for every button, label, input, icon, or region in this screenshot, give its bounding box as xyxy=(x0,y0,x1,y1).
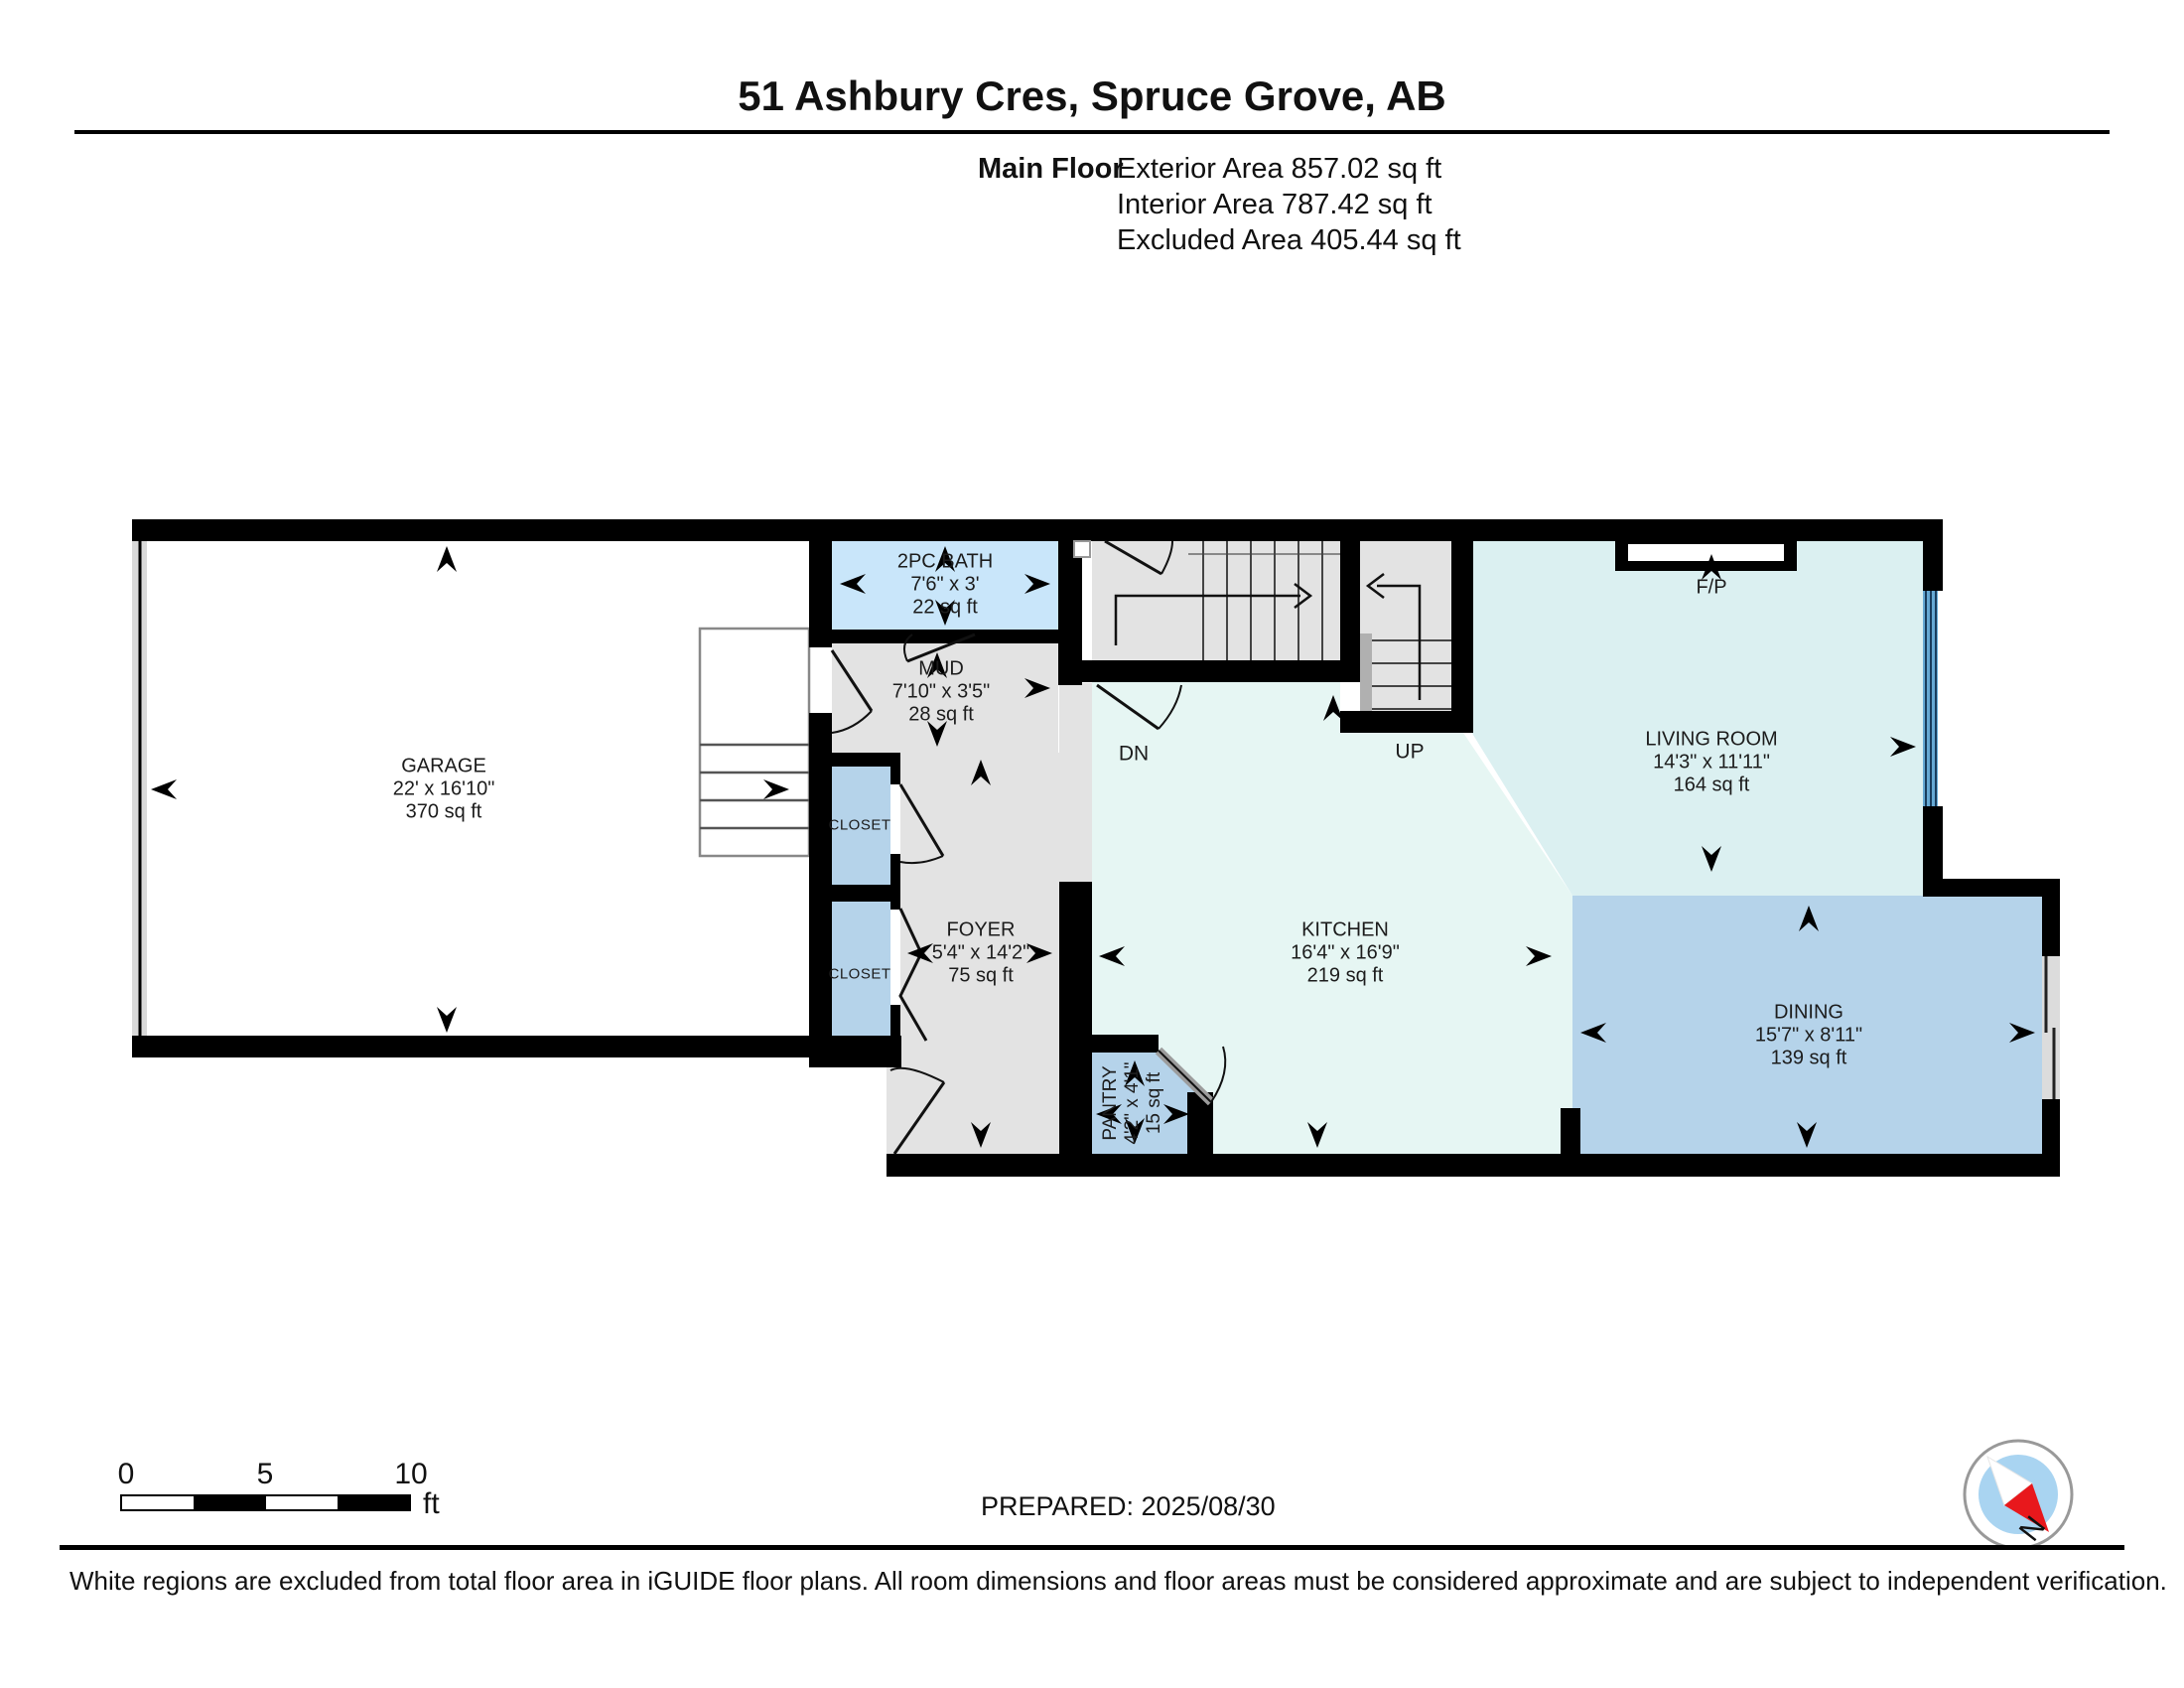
entry-notch xyxy=(1074,541,1090,557)
room-label-dining: DINING 15'7" x 8'11" 139 sq ft xyxy=(1755,1002,1862,1070)
floor-plan-drawing xyxy=(0,0,2184,1688)
room-label-closet-1: CLOSET xyxy=(828,817,890,834)
footer-divider xyxy=(60,1545,2124,1550)
fireplace-niche xyxy=(1615,541,1797,571)
room-label-kitchen: KITCHEN 16'4" x 16'9" 219 sq ft xyxy=(1291,919,1400,988)
fireplace-label: F/P xyxy=(1696,577,1726,600)
room-label-bath: 2PC BATH 7'6" x 3' 22 sq ft xyxy=(897,551,993,620)
room-label-pantry: PANTRY 4'2" x 4'1" 15 sq ft xyxy=(1100,1061,1165,1144)
room-label-closet-2: CLOSET xyxy=(828,966,890,983)
floor-plan-page: 51 Ashbury Cres, Spruce Grove, AB Main F… xyxy=(0,0,2184,1688)
scale-tick-0: 0 xyxy=(118,1458,135,1491)
scale-tick-5: 5 xyxy=(257,1458,274,1491)
room-label-garage: GARAGE 22' x 16'10" 370 sq ft xyxy=(393,756,495,824)
stairs-up-label: UP xyxy=(1395,741,1424,764)
stairs-garage xyxy=(700,629,809,856)
disclaimer-text: White regions are excluded from total fl… xyxy=(69,1566,2167,1597)
stairs-down-label: DN xyxy=(1119,743,1149,766)
prepared-date: PREPARED: 2025/08/30 xyxy=(981,1491,1276,1522)
scale-tick-10: 10 xyxy=(394,1458,427,1491)
scale-unit-label: ft xyxy=(423,1487,440,1521)
room-label-mud: MUD 7'10" x 3'5" 28 sq ft xyxy=(892,658,991,727)
room-label-foyer: FOYER 5'4" x 14'2" 75 sq ft xyxy=(932,919,1030,988)
room-label-living: LIVING ROOM 14'3" x 11'11" 164 sq ft xyxy=(1645,729,1777,797)
window-living xyxy=(1923,591,1938,806)
scale-bar xyxy=(120,1494,411,1511)
sliding-door-dining xyxy=(2042,956,2060,1099)
